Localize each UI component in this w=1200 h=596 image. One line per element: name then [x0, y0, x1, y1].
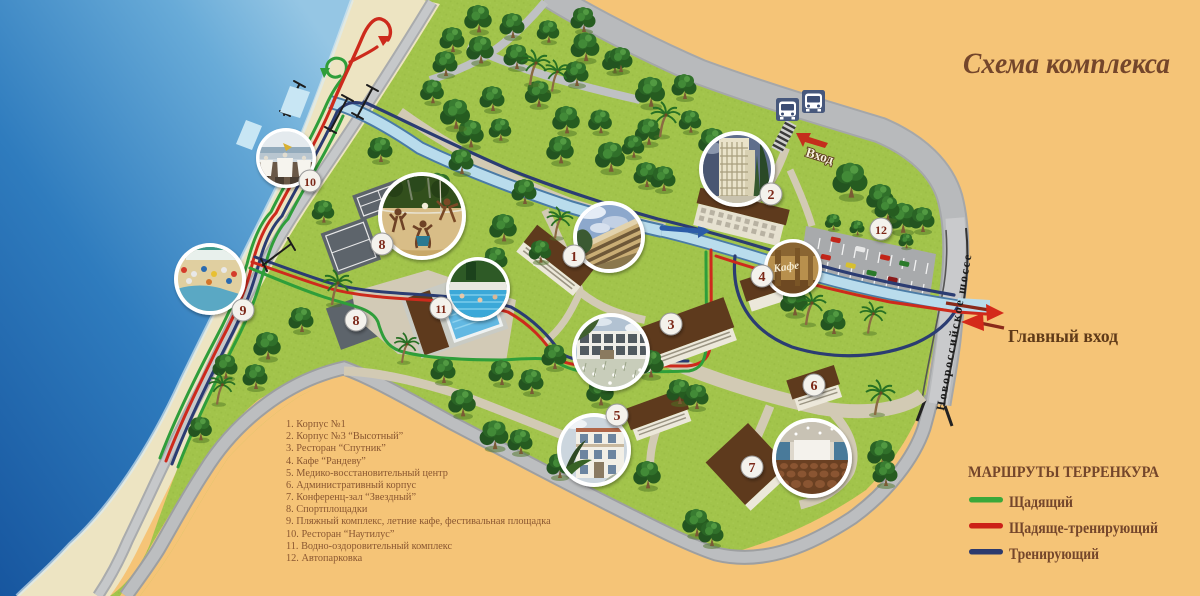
- svg-text:Щадящий: Щадящий: [1009, 494, 1073, 511]
- svg-text:10: 10: [304, 175, 316, 189]
- svg-text:8: 8: [379, 238, 386, 253]
- svg-text:7. Конференц-зал “Звездный”: 7. Конференц-зал “Звездный”: [286, 492, 416, 503]
- svg-text:4: 4: [759, 270, 766, 285]
- svg-text:9: 9: [240, 304, 247, 319]
- svg-text:8: 8: [353, 314, 360, 329]
- svg-text:2. Корпус №3 “Высотный”: 2. Корпус №3 “Высотный”: [286, 431, 404, 442]
- svg-text:12. Автопарковка: 12. Автопарковка: [286, 553, 363, 564]
- svg-text:7: 7: [749, 461, 756, 476]
- svg-text:6. Административный корпус: 6. Административный корпус: [286, 480, 416, 491]
- svg-text:МАРШРУТЫ ТЕРРЕНКУРА: МАРШРУТЫ ТЕРРЕНКУРА: [968, 464, 1159, 481]
- svg-text:1: 1: [571, 250, 578, 265]
- svg-text:11. Водно-оздоровительный комп: 11. Водно-оздоровительный комплекс: [286, 541, 453, 552]
- svg-text:9. Пляжный комплекс, летние ка: 9. Пляжный комплекс, летние кафе, фестив…: [286, 516, 551, 527]
- svg-text:1. Корпус №1: 1. Корпус №1: [286, 419, 346, 430]
- svg-text:12: 12: [875, 223, 887, 237]
- svg-text:5. Медико-восстановительный це: 5. Медико-восстановительный центр: [286, 468, 448, 479]
- svg-text:6: 6: [811, 379, 818, 394]
- svg-text:Схема комплекса: Схема комплекса: [963, 47, 1170, 80]
- svg-text:Главный вход: Главный вход: [1008, 326, 1118, 346]
- svg-text:4. Кафе “Рандеву”: 4. Кафе “Рандеву”: [286, 456, 366, 467]
- svg-text:Щадяще-тренирующий: Щадяще-тренирующий: [1009, 520, 1158, 537]
- svg-text:2: 2: [768, 188, 775, 203]
- svg-text:3. Ресторан “Спутник”: 3. Ресторан “Спутник”: [286, 443, 386, 454]
- svg-text:5: 5: [614, 409, 621, 424]
- svg-text:10. Ресторан “Наутилус”: 10. Ресторан “Наутилус”: [286, 529, 395, 540]
- svg-text:11: 11: [435, 302, 446, 316]
- svg-text:Тренирующий: Тренирующий: [1009, 546, 1099, 563]
- svg-text:3: 3: [668, 318, 675, 333]
- svg-text:8. Спортплощадки: 8. Спортплощадки: [286, 504, 368, 515]
